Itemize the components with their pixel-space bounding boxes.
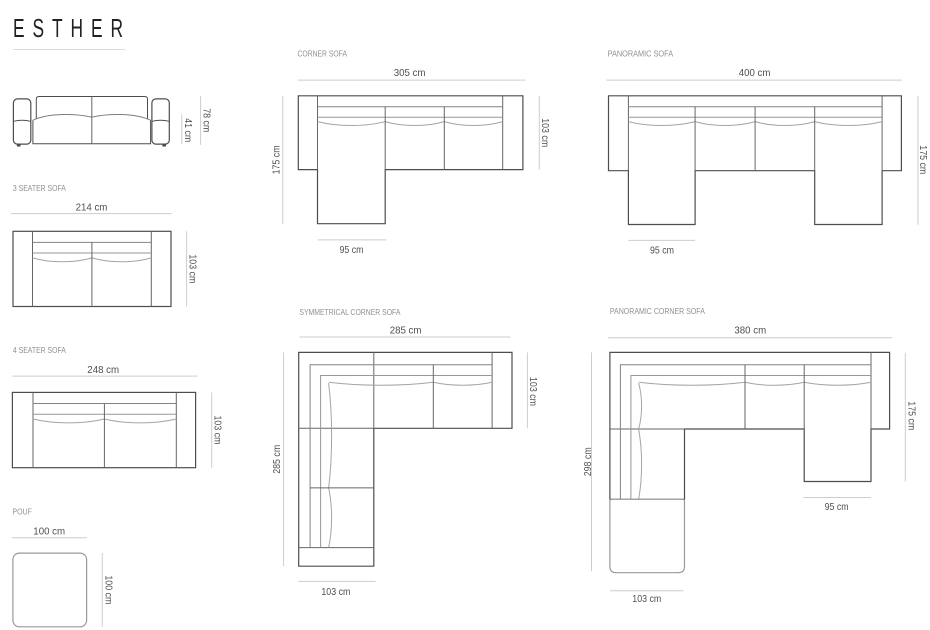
- svg-text:PANORAMIC SOFA: PANORAMIC SOFA: [608, 48, 674, 58]
- svg-text:95 cm: 95 cm: [650, 245, 674, 256]
- svg-text:103 cm: 103 cm: [539, 118, 550, 147]
- svg-text:41 cm: 41 cm: [182, 118, 193, 142]
- svg-text:POUF: POUF: [12, 507, 32, 517]
- svg-text:103 cm: 103 cm: [186, 254, 197, 283]
- svg-text:175 cm: 175 cm: [917, 145, 928, 174]
- svg-text:400 cm: 400 cm: [739, 68, 771, 79]
- svg-text:103 cm: 103 cm: [212, 416, 223, 445]
- svg-text:175 cm: 175 cm: [271, 145, 282, 174]
- svg-text:100 cm: 100 cm: [33, 526, 65, 537]
- svg-text:285 cm: 285 cm: [272, 445, 283, 474]
- svg-text:95 cm: 95 cm: [340, 245, 364, 256]
- svg-text:3 SEATER SOFA: 3 SEATER SOFA: [13, 183, 66, 193]
- svg-text:CORNER SOFA: CORNER SOFA: [298, 49, 348, 59]
- svg-text:95 cm: 95 cm: [825, 502, 849, 513]
- svg-text:4 SEATER SOFA: 4 SEATER SOFA: [13, 345, 66, 355]
- svg-text:103 cm: 103 cm: [527, 377, 538, 406]
- svg-text:214 cm: 214 cm: [76, 203, 108, 214]
- svg-text:248 cm: 248 cm: [87, 365, 119, 376]
- svg-text:100 cm: 100 cm: [102, 575, 113, 604]
- svg-text:SYMMETRICAL CORNER SOFA: SYMMETRICAL CORNER SOFA: [299, 307, 400, 317]
- svg-text:103 cm: 103 cm: [321, 587, 350, 598]
- svg-text:380 cm: 380 cm: [734, 326, 766, 337]
- svg-text:298 cm: 298 cm: [583, 447, 594, 476]
- svg-text:78 cm: 78 cm: [200, 108, 211, 132]
- svg-text:ESTHER: ESTHER: [13, 13, 131, 43]
- svg-text:305 cm: 305 cm: [394, 68, 426, 79]
- svg-text:285 cm: 285 cm: [390, 326, 422, 337]
- svg-text:PANORAMIC CORNER SOFA: PANORAMIC CORNER SOFA: [610, 306, 705, 316]
- svg-text:103 cm: 103 cm: [632, 594, 661, 605]
- svg-text:175 cm: 175 cm: [906, 401, 917, 430]
